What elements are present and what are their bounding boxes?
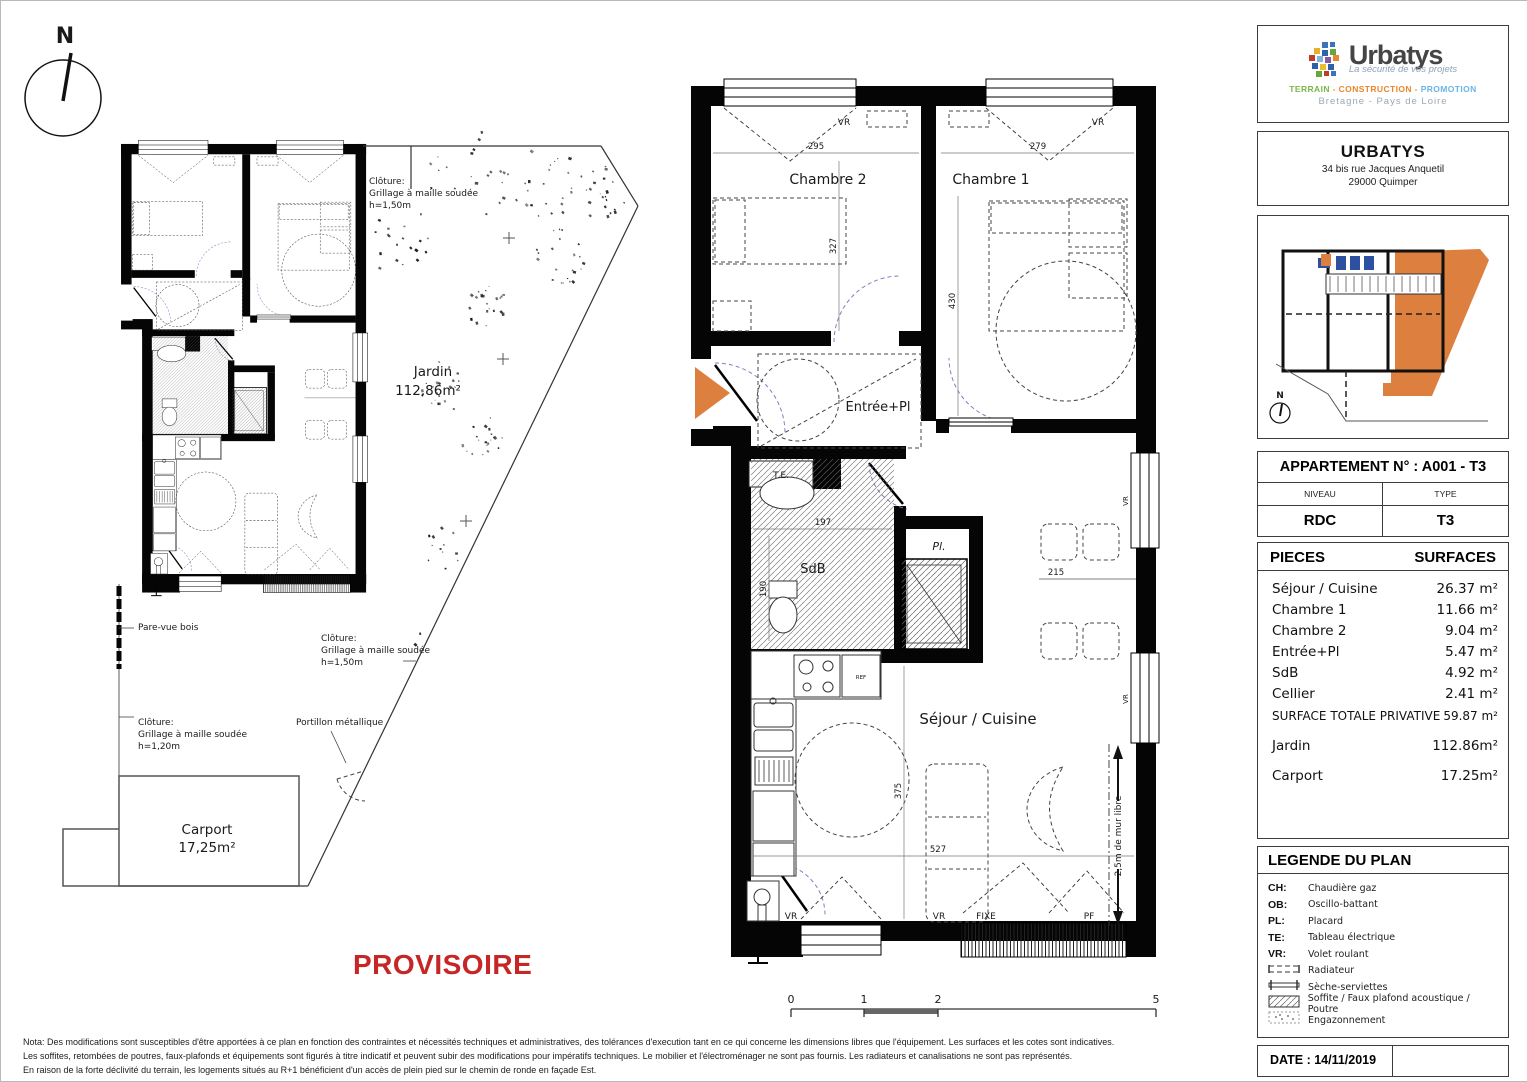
svg-text:h=1,20m: h=1,20m [138,742,180,752]
surfaces-header: SURFACES [1414,549,1496,566]
location-map-box: N [1257,215,1509,439]
plan-sheet: N [0,0,1527,1082]
legend-item: Soffite / Faux plafond acoustique / Pout… [1268,996,1502,1013]
surface-row: Séjour / Cuisine26.37 m² [1272,579,1498,600]
free-wall-label: 2,5m de mur libre [1114,795,1124,876]
svg-text:PF: PF [1084,912,1095,922]
svg-text:FIXE: FIXE [976,912,996,922]
jardin-area: 112,86m² [395,383,461,399]
parcel-fence [119,146,638,886]
svg-text:295: 295 [808,142,824,152]
highlighted-parcel [1383,249,1489,396]
pl-label: Pl. [932,540,945,553]
svg-text:0: 0 [788,993,795,1006]
type-header: TYPE [1383,483,1508,506]
apartment-plan: Chambre 2 Chambre 1 Entrée+Pl T.E. SdB P… [689,79,1160,1017]
svg-text:527: 527 [930,845,946,855]
towel-rail-icon [1268,978,1308,996]
logo-box: Urbatys La sécurité de vos projets TERRA… [1257,25,1509,123]
address-line2: 29000 Quimper [1258,177,1508,188]
te-label: T.E. [772,471,789,481]
svg-text:1: 1 [861,993,868,1006]
soffit-hatch-icon [1268,995,1308,1013]
apartment-info-box: APPARTEMENT N° : A001 - T3 NIVEAU TYPE R… [1257,451,1509,537]
legend-item: Radiateur [1268,963,1502,980]
pieces-header: PIECES [1270,549,1325,566]
floorplan-drawing: N [1,1,1251,1031]
svg-text:215: 215 [1048,568,1064,578]
pare-vue-label: Pare-vue bois [138,623,199,633]
chambre1-label: Chambre 1 [952,172,1029,188]
svg-text:h=1,50m: h=1,50m [369,201,411,211]
apartment-title: APPARTEMENT N° : A001 - T3 [1258,452,1508,483]
legend-item: VR:Volet roulant [1268,946,1502,963]
svg-text:190: 190 [759,581,769,597]
svg-text:430: 430 [948,293,958,309]
carport-label: Carport [182,822,233,838]
logo-tagline: La sécurité de vos projets [1349,64,1457,75]
north-label: N [56,24,74,49]
logo-sectors: TERRAIN - CONSTRUCTION - PROMOTION [1289,84,1476,94]
surface-row: Carport17.25m² [1272,766,1498,787]
surface-row: Chambre 111.66 m² [1272,600,1498,621]
svg-text:VR: VR [1092,118,1104,128]
legend-item: OB:Oscillo-battant [1268,897,1502,914]
surface-row: Jardin112.86m² [1272,736,1498,757]
address-box: URBATYS 34 bis rue Jacques Anquetil 2900… [1257,131,1509,206]
provisoire-stamp: PROVISOIRE [353,949,532,981]
svg-text:Grillage à maille soudée: Grillage à maille soudée [138,729,248,740]
legend-item: TE:Tableau électrique [1268,930,1502,947]
footnote-line: Nota: Des modifications sont susceptible… [23,1035,1245,1049]
svg-text:327: 327 [829,238,839,254]
surface-total-row: SURFACE TOTALE PRIVATIVE59.87 m² [1272,705,1498,727]
north-compass: N [25,24,101,136]
legend-title: LEGENDE DU PLAN [1258,847,1508,874]
ref-label: REF [856,675,866,681]
location-map: N [1258,216,1507,437]
sdb-label: SdB [800,562,825,577]
urbatys-logo-icon [1309,42,1343,78]
svg-text:VR: VR [785,912,797,922]
date-box: DATE : 14/11/2019 [1257,1045,1509,1077]
footnote: Nota: Des modifications sont susceptible… [23,1035,1245,1077]
legend-item: CH:Chaudière gaz [1268,880,1502,897]
svg-text:Grillage à maille soudée: Grillage à maille soudée [321,645,431,656]
svg-text:Grillage à maille soudée: Grillage à maille soudée [369,188,479,199]
svg-text:197: 197 [815,518,831,528]
fence-right-note: Clôture: [321,633,357,644]
company-name: URBATYS [1258,142,1508,162]
address-line1: 34 bis rue Jacques Anquetil [1258,164,1508,175]
type-value: T3 [1383,506,1508,536]
svg-text:VR: VR [1122,496,1130,506]
footnote-line: Les soffites, retombées de poutres, faux… [23,1049,1245,1063]
fence-left-note: Clôture: [138,717,174,728]
gate [337,771,365,801]
svg-text:2: 2 [935,993,942,1006]
entree-label: Entrée+Pl [846,400,911,415]
svg-text:279: 279 [1030,142,1046,152]
site-plan: N [25,24,638,886]
niveau-value: RDC [1258,506,1383,536]
logo-regions: Bretagne - Pays de Loire [1318,96,1447,107]
surface-row: Cellier2.41 m² [1272,684,1498,705]
carport-area: 17,25m² [178,840,235,856]
site-labels: Clôture: Grillage à maille soudée h=1,50… [138,176,479,752]
surface-row: SdB4.92 m² [1272,663,1498,684]
surface-row: Chambre 29.04 m² [1272,621,1498,642]
legend-item: PL:Placard [1268,913,1502,930]
map-north-compass: N [1270,391,1290,423]
niveau-header: NIVEAU [1258,483,1383,506]
portillon-label: Portillon métallique [296,717,384,728]
map-north-label: N [1276,391,1284,401]
scale-bar: 0 1 2 5 [788,993,1160,1017]
garden-cross-marks [460,232,515,527]
svg-text:VR: VR [838,118,850,128]
surface-row: Entrée+Pl5.47 m² [1272,642,1498,663]
logo-name: Urbatys [1349,44,1457,66]
svg-text:VR: VR [933,912,945,922]
chambre2-label: Chambre 2 [789,172,866,188]
date-value: DATE : 14/11/2019 [1258,1046,1393,1076]
svg-text:h=1,50m: h=1,50m [321,658,363,668]
legend-box: LEGENDE DU PLAN CH:Chaudière gaz OB:Osci… [1257,846,1509,1038]
sejour-label: Séjour / Cuisine [919,710,1036,728]
radiator-icon [1268,962,1308,980]
svg-text:375: 375 [894,783,904,799]
jardin-label: Jardin [413,364,452,380]
svg-text:5: 5 [1153,993,1160,1006]
footnote-line: En raison de la forte déclivité du terra… [23,1063,1245,1077]
grass-icon [1268,1011,1308,1029]
surfaces-box: PIECES SURFACES Séjour / Cuisine26.37 m²… [1257,542,1509,839]
svg-text:VR: VR [1122,694,1130,704]
fence-top-note: Clôture: [369,176,405,187]
